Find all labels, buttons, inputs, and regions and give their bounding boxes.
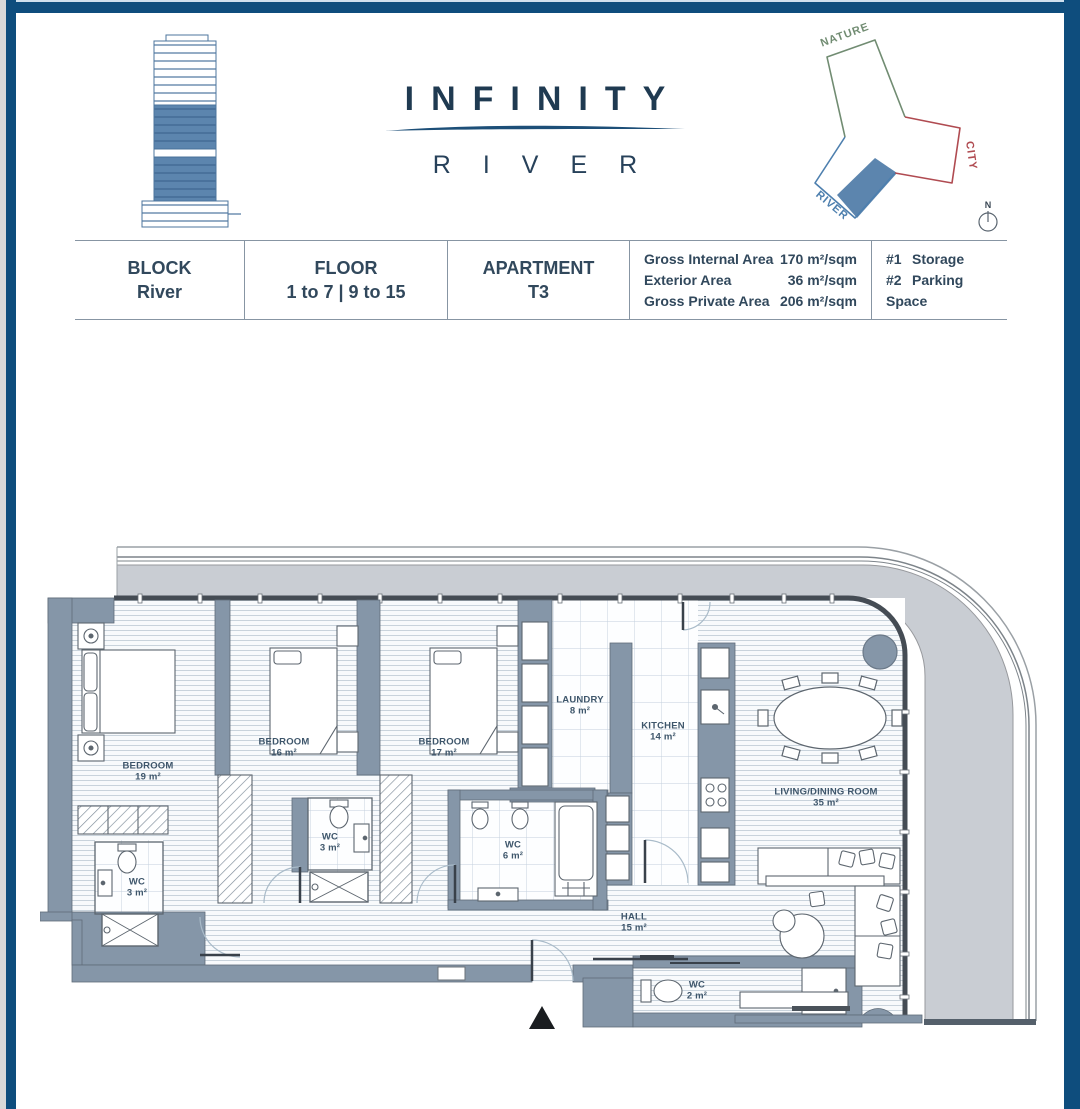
hall-window [438,967,465,980]
page-frame-top [6,0,1080,13]
area-value: 36 m²/sqm [788,270,857,291]
room-label-bedroom-1: BEDROOM19 m² [122,761,173,784]
wardrobe-icon [218,775,252,903]
area-row: Gross Private Area 206 m²/sqm [644,291,857,312]
area-label: Exterior Area [644,270,731,291]
room-label-living-dining: LIVING/DINING ROOM35 m² [774,787,877,810]
column-icon [863,635,897,669]
extra-number: #1 [886,249,912,270]
info-table: BLOCK River FLOOR 1 to 7 | 9 to 15 APART… [75,240,1007,320]
apartment-label: APARTMENT [483,256,595,280]
area-value: 170 m²/sqm [780,249,857,270]
wardrobe-icon [78,806,168,834]
room-label-wc-2: WC3 m² [320,832,340,855]
apartment-cell: APARTMENT T3 [448,241,630,319]
area-value: 206 m²/sqm [780,291,857,312]
room-label-wc-1: WC3 m² [127,877,147,900]
floor-value: 1 to 7 | 9 to 15 [286,280,405,304]
area-label: Gross Internal Area [644,249,773,270]
page-frame-right [1064,0,1080,1109]
page-subtitle: RIVER [300,151,770,180]
site-plan-diagram: NATURE CITY RIVER N [800,22,1010,237]
area-label: Gross Private Area [644,291,770,312]
floor-label: FLOOR [315,256,378,280]
block-value: River [137,280,182,304]
room-label-laundry: LAUNDRY8 m² [556,695,604,718]
room-label-wc-3: WC6 m² [503,840,523,863]
extra-label: Storage [912,251,964,267]
areas-cell: Gross Internal Area 170 m²/sqm Exterior … [630,241,872,319]
entrance-arrow-icon [529,1006,555,1029]
nature-label: NATURE [819,22,871,50]
city-wing-outline [895,117,960,183]
apartment-value: T3 [528,280,549,304]
wardrobe-icon [380,775,412,903]
compass-north-label: N [985,200,992,210]
floor-cell: FLOOR 1 to 7 | 9 to 15 [245,241,448,319]
swoosh-icon [385,124,685,134]
page-frame-left [6,0,16,1109]
block-cell: BLOCK River [75,241,245,319]
room-label-bedroom-2: BEDROOM16 m² [258,737,309,760]
floor-plan [40,540,1040,1045]
compass-icon: N [979,200,997,231]
extra-row: #1Storage [886,249,1007,270]
bathtub-icon [555,802,597,896]
tower-logo-icon [140,33,245,235]
extra-number: #2 [886,270,912,291]
nature-wing-outline [827,40,905,137]
city-label: CITY [963,140,979,170]
tv-console-icon [740,992,850,1011]
extras-cell: #1Storage #2Parking Space [872,241,1007,319]
room-label-kitchen: KITCHEN14 m² [641,721,685,744]
room-label-bedroom-3: BEDROOM17 m² [418,737,469,760]
area-row: Exterior Area 36 m²/sqm [644,270,857,291]
room-label-hall: HALL15 m² [621,912,647,935]
area-row: Gross Internal Area 170 m²/sqm [644,249,857,270]
block-label: BLOCK [128,256,192,280]
page-title: INFINITY [300,80,770,119]
extra-row: #2Parking Space [886,270,1007,312]
room-label-wc-4: WC2 m² [687,980,707,1003]
